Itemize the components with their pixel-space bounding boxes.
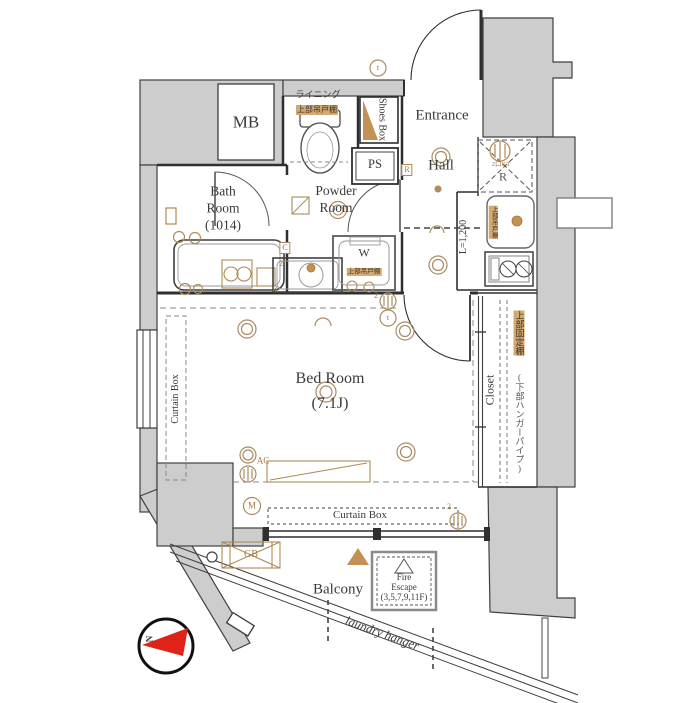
meter-box: [218, 84, 274, 160]
floor-plan: MB ライニング 上部吊戸棚 Shoes Box Entrance PS R H…: [0, 0, 695, 703]
kitchen-light-symbol: [490, 141, 510, 161]
curtain-box-left-outline: [166, 316, 186, 480]
powder-fixtures: [292, 197, 347, 219]
hanger-pipe: [500, 300, 507, 483]
ceiling-dashes: [160, 300, 478, 482]
ac-unit: [267, 461, 370, 482]
curtain-box-bottom-outline: [268, 508, 458, 524]
left-window: [137, 330, 157, 428]
pipe-space: [352, 148, 398, 184]
fire-escape-hatch: [372, 552, 436, 610]
gas-stove: [485, 252, 533, 286]
shower-fittings: [166, 208, 203, 295]
closet-door: [475, 296, 486, 487]
toilet: [290, 110, 348, 173]
bathtub: [174, 240, 284, 290]
kitchen-sink: [487, 196, 534, 248]
floor-plan-drawing: [0, 0, 695, 703]
evacuation-triangle: [347, 548, 369, 565]
vent-sleeve: [557, 198, 612, 228]
compass: [139, 619, 193, 673]
entrance-door: [411, 10, 481, 80]
shoes-box: [360, 97, 398, 143]
powder-room-door: [348, 180, 400, 232]
bath-door: [215, 172, 269, 226]
